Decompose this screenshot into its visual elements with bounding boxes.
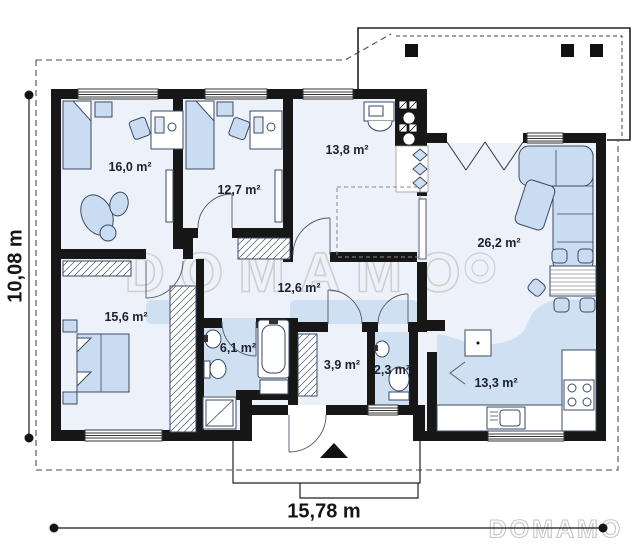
computer-icon bbox=[155, 117, 164, 133]
room-label-utility: 13,8 m² bbox=[325, 143, 368, 157]
toilet bbox=[210, 360, 226, 379]
chair bbox=[580, 298, 595, 312]
nightstand bbox=[217, 102, 233, 116]
porch-step bbox=[300, 483, 418, 498]
living-room-furniture bbox=[447, 142, 596, 312]
room-label-bedroom-1: 16,0 m² bbox=[108, 160, 151, 174]
room-label-kitchen: 13,3 m² bbox=[474, 376, 517, 390]
terrace-post bbox=[590, 44, 603, 57]
kitchen-opening bbox=[427, 331, 437, 352]
door-arc bbox=[293, 218, 330, 255]
armchair bbox=[514, 178, 557, 231]
step bbox=[260, 380, 288, 394]
toilet-tank bbox=[389, 392, 409, 400]
chair bbox=[578, 249, 593, 263]
room-label-living: 26,2 m² bbox=[477, 236, 520, 250]
door-arc bbox=[289, 415, 326, 452]
dimension-height: 10,08 m bbox=[5, 229, 28, 302]
door-leaf bbox=[450, 362, 465, 384]
bathtub bbox=[258, 320, 289, 378]
floor-plan-page: DOMAMO DOMAMO bbox=[0, 0, 640, 550]
room-label-bedroom-2: 12,7 m² bbox=[217, 183, 260, 197]
chair bbox=[228, 117, 250, 141]
chair bbox=[128, 116, 150, 140]
door-leaf bbox=[419, 199, 426, 259]
attic-outline bbox=[337, 187, 420, 257]
dimension-width: 15,78 m bbox=[287, 501, 360, 524]
room-label-wc: 2,3 m² bbox=[374, 363, 410, 377]
door-arc bbox=[378, 294, 408, 324]
entrance-marker-icon bbox=[320, 443, 348, 458]
chair bbox=[554, 298, 569, 312]
door-arc bbox=[328, 290, 362, 324]
bedroom-2-furniture bbox=[186, 101, 282, 222]
room-label-bedroom-3: 15,6 m² bbox=[104, 310, 147, 324]
room-label-hall: 12,6 m² bbox=[277, 281, 320, 295]
shelf bbox=[275, 170, 282, 222]
entrance-opening bbox=[288, 405, 326, 415]
computer-icon bbox=[254, 117, 263, 133]
entrance bbox=[233, 415, 420, 498]
toilet-tank bbox=[204, 361, 210, 378]
door-arc bbox=[198, 194, 232, 228]
terrace-post bbox=[405, 44, 418, 57]
vestibule-items bbox=[298, 334, 317, 396]
terrace-door-leaves bbox=[447, 142, 523, 170]
chair bbox=[526, 277, 546, 297]
porch-outline bbox=[233, 441, 420, 483]
nightstand bbox=[95, 102, 112, 117]
shelf bbox=[166, 170, 173, 222]
bedroom-3-furniture bbox=[63, 261, 196, 432]
room-label-vestibule: 3,9 m² bbox=[324, 358, 360, 372]
nightstand bbox=[63, 320, 77, 332]
radiator-icon bbox=[396, 146, 428, 192]
terrace-post bbox=[561, 44, 574, 57]
rug bbox=[465, 253, 495, 283]
nightstand bbox=[63, 392, 77, 404]
terrace-door-opening bbox=[447, 133, 523, 143]
chair bbox=[552, 249, 567, 263]
room-label-bathroom: 6,1 m² bbox=[220, 341, 256, 355]
plan-drawing bbox=[0, 0, 640, 550]
